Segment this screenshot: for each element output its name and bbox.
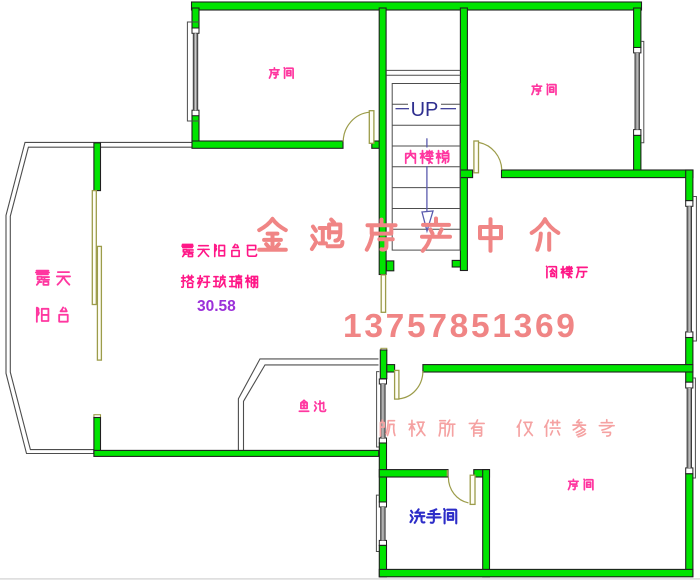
svg-text:13757851369: 13757851369 (343, 308, 578, 345)
svg-text:UP: UP (411, 99, 439, 121)
svg-text:30.58: 30.58 (197, 298, 236, 315)
